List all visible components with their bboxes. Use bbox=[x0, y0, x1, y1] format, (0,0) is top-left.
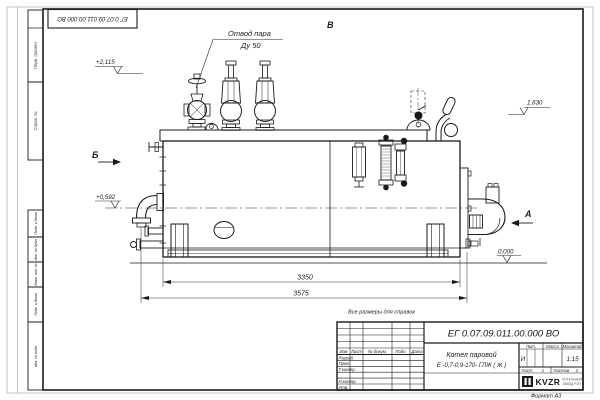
margin-col-inv-dubl: Инв. № дубл. bbox=[34, 238, 38, 260]
tb-lit-header: Лит. bbox=[525, 344, 536, 349]
margin-col-perv-primen: Перв. примен. bbox=[33, 41, 38, 69]
left-margin-columns: Перв. примен. Справ. № Подп. и дата Инв.… bbox=[28, 10, 43, 390]
boiler-drawing-svg: ЕГ 0.07.09.011.00.000 ВО Перв. примен. С… bbox=[0, 0, 600, 400]
tb-col-doc: № докум. bbox=[368, 349, 387, 354]
view-marker-b-text: Б bbox=[92, 150, 99, 160]
margin-col-podp-data-2: Подп. и дата bbox=[34, 293, 38, 316]
tb-row-prov: Пров. bbox=[339, 361, 350, 366]
stamp-designation-text: ЕГ 0.07.09.011.00.000 ВО bbox=[57, 15, 128, 21]
elevation-0000-text: 0,000 bbox=[498, 249, 514, 256]
tb-lit-value: И bbox=[521, 356, 526, 363]
kvzr-logo-text: KVZR bbox=[536, 377, 561, 387]
water-level-indicator bbox=[379, 135, 407, 191]
margin-col-podp-data-1: Подп. и дата bbox=[34, 212, 38, 235]
dim-3350-text: 3350 bbox=[297, 275, 313, 282]
tb-sheet-label: Лист bbox=[521, 368, 533, 373]
boiler-body bbox=[160, 130, 472, 257]
dimension-3575: 3575 bbox=[141, 228, 467, 303]
kvzr-logo: KVZR КОТЕЛЬНЫЙ ЗАВОД РЭП bbox=[522, 376, 583, 387]
tb-scale-value: 1:15 bbox=[566, 356, 579, 363]
callout-steam-outlet-text: Отвод пара bbox=[228, 29, 271, 38]
view-marker-a: А bbox=[511, 209, 533, 226]
steam-outlet-valve bbox=[184, 74, 210, 130]
margin-col-vzam-inv: Взам. инв. № bbox=[34, 263, 38, 285]
tb-row-tkontr: Т.контр. bbox=[339, 367, 356, 372]
tb-col-list: Лист bbox=[350, 349, 362, 354]
format-label: Формат А3 bbox=[531, 394, 562, 400]
siphon-pipe-sensor bbox=[436, 96, 458, 141]
elevation-2115: +2,115 bbox=[95, 59, 143, 74]
title-block: Изм Лист № докум. Подп. Дата Разраб. Про… bbox=[337, 322, 583, 390]
safety-valve-1 bbox=[221, 61, 242, 130]
steam-outlet-callout: Отвод пара Ду 50 bbox=[196, 29, 283, 88]
tb-sheets-label: Листов bbox=[553, 368, 570, 373]
left-fittings bbox=[131, 142, 164, 250]
tb-col-izm: Изм bbox=[340, 349, 348, 354]
elevation-0000: 0,000 bbox=[497, 249, 521, 263]
kvzr-logo-sub2: ЗАВОД РЭП bbox=[563, 382, 582, 386]
tb-row-nkontr: Н.контр. bbox=[339, 379, 357, 384]
tb-row-razrab: Разраб. bbox=[339, 355, 355, 360]
burner bbox=[466, 184, 505, 249]
tb-row-utv: Утв. bbox=[339, 385, 349, 390]
elevation-0592: +0,592 bbox=[95, 194, 121, 208]
lifting-lug bbox=[205, 124, 218, 131]
elevation-2115-text: +2,115 bbox=[96, 59, 115, 66]
top-fitting-phantom bbox=[407, 88, 430, 130]
tb-scale-header: Масштаб bbox=[562, 344, 583, 349]
dim-3575-text: 3575 bbox=[293, 291, 309, 298]
view-marker-v: В bbox=[327, 20, 334, 30]
tb-col-podp: Подп. bbox=[395, 349, 406, 354]
margin-col-inv-podl: Инв. № подл. bbox=[34, 345, 38, 367]
view-marker-v-text: В bbox=[327, 20, 334, 30]
reference-note: Все размеры для справок bbox=[348, 310, 415, 316]
drawing-sheet: ЕГ 0.07.09.011.00.000 ВО Перв. примен. С… bbox=[0, 0, 600, 400]
view-marker-a-text: А bbox=[524, 209, 532, 219]
tb-col-data: Дата bbox=[410, 349, 423, 354]
kvzr-logo-sub1: КОТЕЛЬНЫЙ bbox=[563, 378, 584, 382]
tb-sheets-value: 2 bbox=[575, 368, 579, 373]
level-gauge-column bbox=[353, 143, 366, 187]
elevation-1630: 1,630 bbox=[508, 100, 550, 115]
safety-valve-2 bbox=[255, 61, 276, 130]
tb-sheet-value: 1 bbox=[542, 368, 545, 373]
tb-designation: ЕГ 0.07.09.011.00.000 ВО bbox=[448, 329, 560, 340]
tb-mass-header: Масса bbox=[546, 344, 559, 349]
tb-name-line1: Котел паровой bbox=[446, 351, 496, 359]
view-marker-b: Б bbox=[92, 150, 121, 165]
elevation-1630-text: 1,630 bbox=[527, 100, 543, 107]
margin-col-sprav: Справ. № bbox=[33, 111, 38, 130]
manhole bbox=[214, 222, 234, 239]
top-designation-stamp: ЕГ 0.07.09.011.00.000 ВО bbox=[48, 10, 137, 29]
callout-dn50-text: Ду 50 bbox=[240, 41, 261, 50]
tb-name-line2: Е -0,7-0,9-170- ГЛЖ ( Ж ) bbox=[437, 363, 506, 369]
support-legs bbox=[171, 224, 444, 257]
elevation-0592-text: +0,592 bbox=[96, 194, 116, 201]
